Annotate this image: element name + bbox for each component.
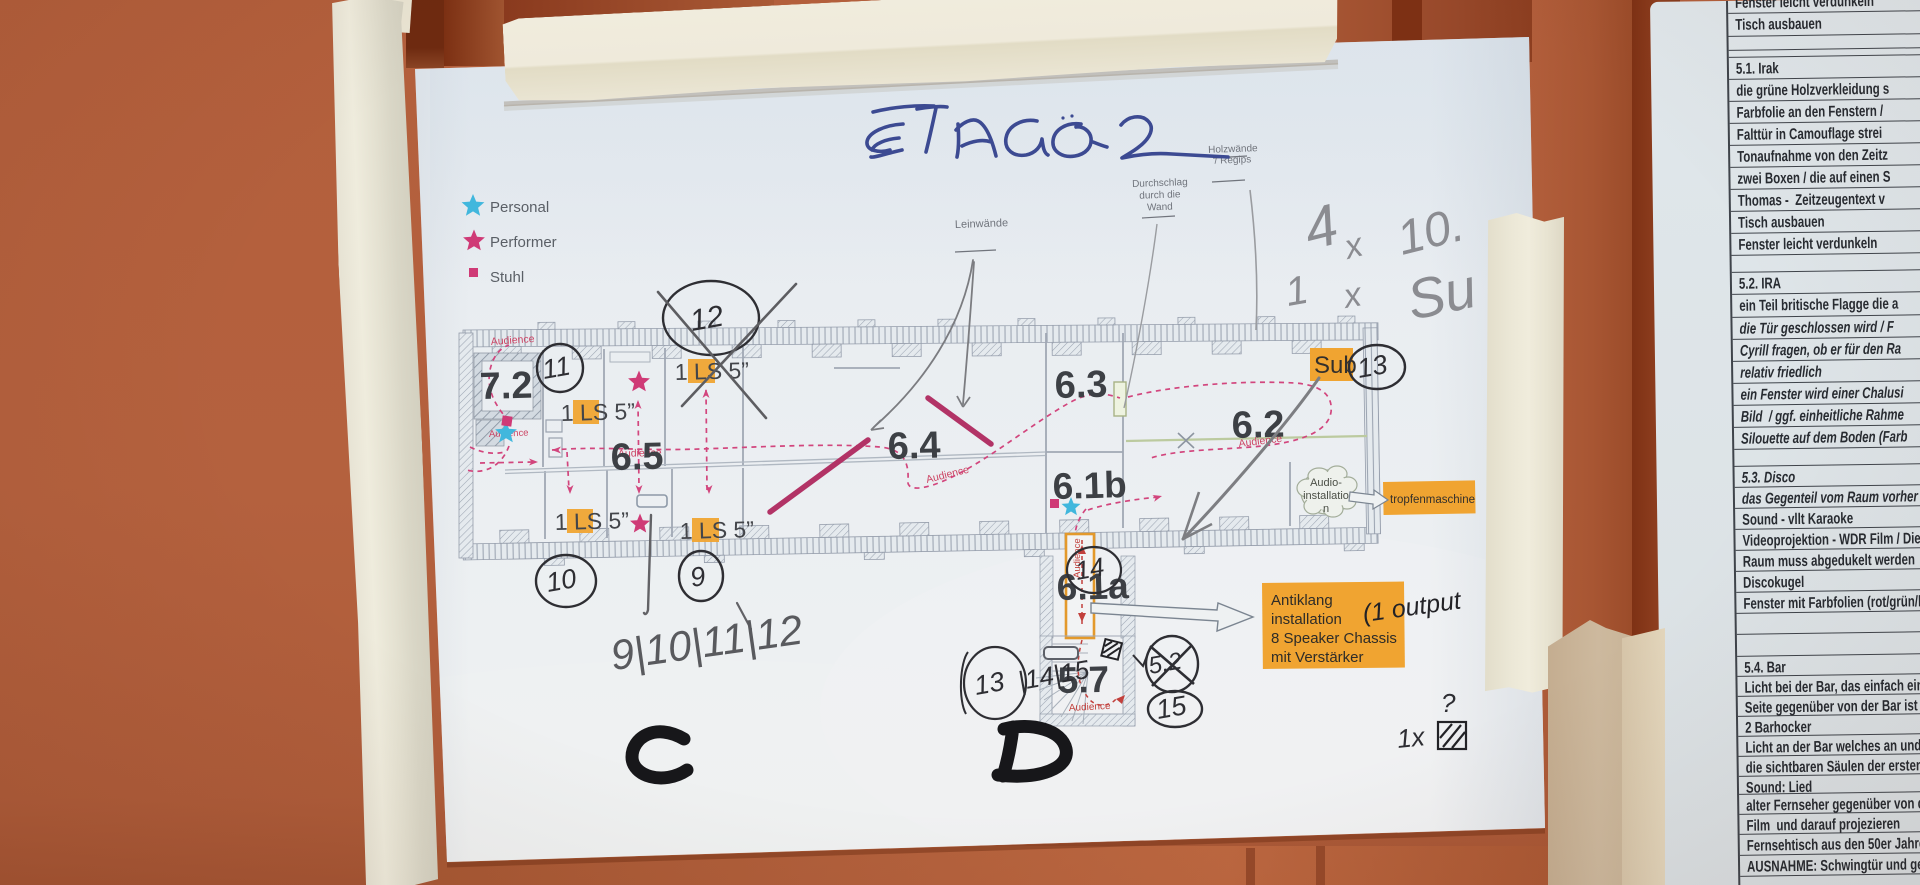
svg-text:15: 15 bbox=[1154, 690, 1190, 725]
svg-text:1 LS 5”: 1 LS 5” bbox=[560, 398, 635, 426]
svg-text:Wand: Wand bbox=[1147, 202, 1173, 214]
svg-text:Leinwände: Leinwände bbox=[955, 217, 1009, 231]
svg-text:8 Speaker Chassis: 8 Speaker Chassis bbox=[1271, 630, 1397, 647]
svg-text:Performer: Performer bbox=[490, 234, 557, 251]
svg-text:1 LS 5”: 1 LS 5” bbox=[679, 516, 754, 544]
svg-text:n: n bbox=[1323, 503, 1329, 515]
svg-text:6.4: 6.4 bbox=[887, 425, 941, 468]
svg-text:6.3: 6.3 bbox=[1054, 364, 1108, 407]
svg-text:durch die: durch die bbox=[1139, 189, 1181, 201]
svg-text:14: 14 bbox=[1073, 551, 1107, 586]
svg-text:13: 13 bbox=[1355, 349, 1390, 384]
svg-text:installation: installation bbox=[1271, 611, 1342, 628]
svg-text:mit Verstärker: mit Verstärker bbox=[1271, 649, 1364, 666]
svg-text:tropfenmaschine: tropfenmaschine bbox=[1390, 494, 1475, 506]
svg-text:1x: 1x bbox=[1395, 721, 1426, 754]
svg-text:11: 11 bbox=[540, 350, 573, 384]
svg-text:10: 10 bbox=[544, 563, 579, 598]
svg-text:7.2: 7.2 bbox=[479, 365, 533, 408]
svg-text:Personal: Personal bbox=[490, 199, 549, 216]
svg-text:6.5: 6.5 bbox=[610, 436, 664, 479]
svg-text:Stuhl: Stuhl bbox=[490, 269, 524, 286]
svg-text:13: 13 bbox=[972, 666, 1007, 701]
svg-text:Audio-: Audio- bbox=[1310, 477, 1342, 489]
svg-text:5.2: 5.2 bbox=[1146, 648, 1184, 680]
svg-text:installatio: installatio bbox=[1303, 490, 1349, 502]
svg-text:1 LS 5”: 1 LS 5” bbox=[674, 357, 749, 385]
svg-text:1 LS 5”: 1 LS 5” bbox=[554, 507, 629, 535]
svg-text:6.1b: 6.1b bbox=[1052, 464, 1127, 507]
svg-text:Antiklang: Antiklang bbox=[1271, 592, 1333, 609]
svg-text:Durchschlag: Durchschlag bbox=[1132, 177, 1188, 190]
svg-text:6.2: 6.2 bbox=[1231, 404, 1285, 447]
svg-text:Audience: Audience bbox=[1069, 701, 1112, 714]
svg-text:?: ? bbox=[1441, 688, 1456, 718]
